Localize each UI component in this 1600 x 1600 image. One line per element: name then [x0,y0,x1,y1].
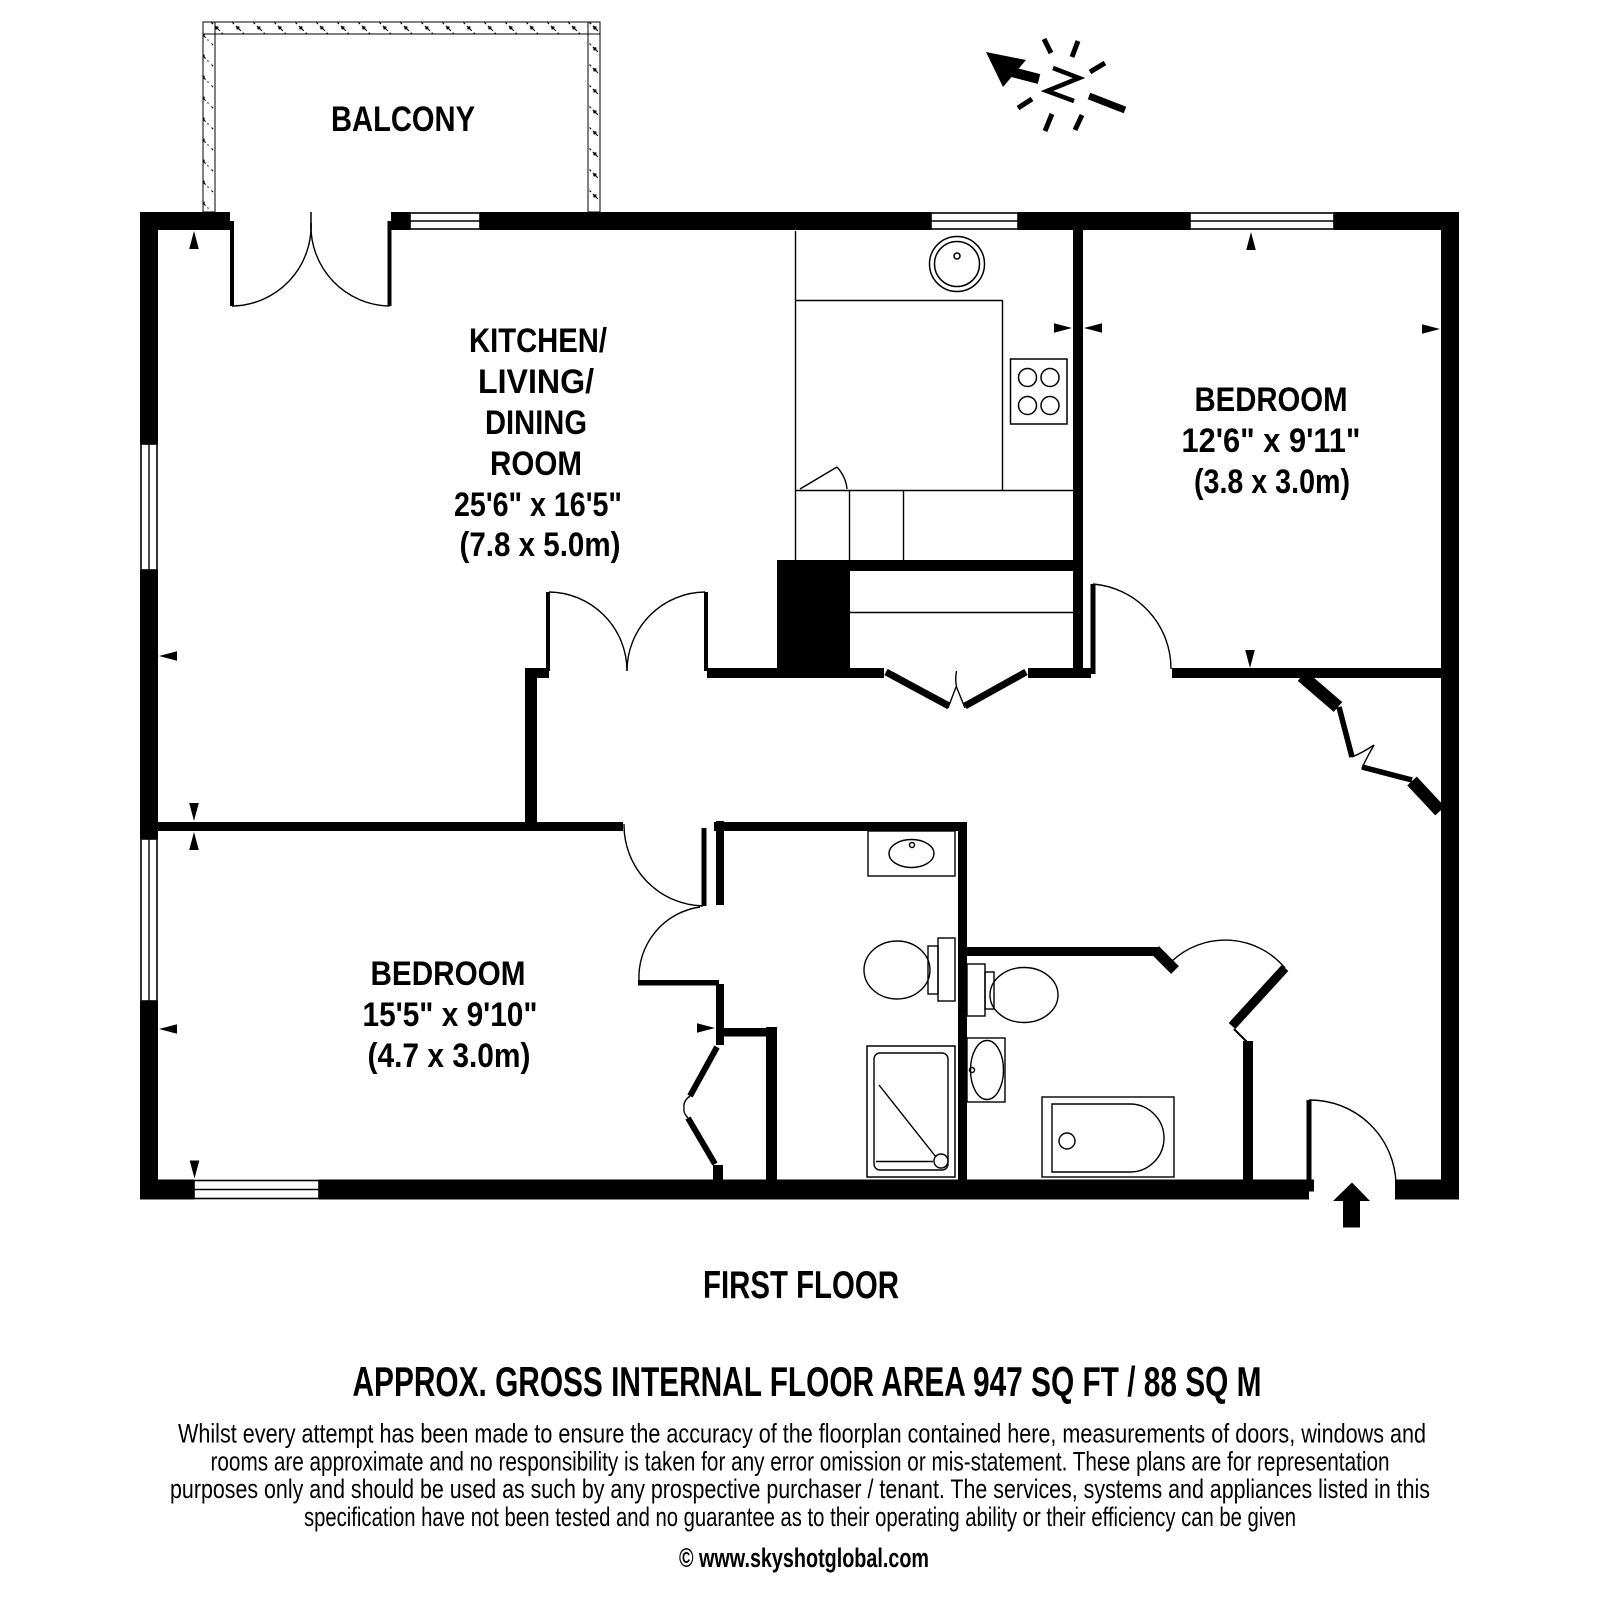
svg-text:BEDROOM: BEDROOM [371,955,526,993]
svg-text:ROOM: ROOM [490,445,582,483]
svg-text:(7.8 x 5.0m): (7.8 x 5.0m) [460,526,621,564]
svg-text:(3.8 x 3.0m): (3.8 x 3.0m) [1194,463,1350,501]
svg-text:25'6" x 16'5": 25'6" x 16'5" [454,486,622,524]
svg-text:purposes only and should be u: purposes only and should be used as such… [170,1474,1430,1504]
svg-text:15'5" x 9'10": 15'5" x 9'10" [363,996,538,1034]
svg-text:(4.7 x 3.0m): (4.7 x 3.0m) [368,1037,531,1075]
svg-text:KITCHEN/: KITCHEN/ [469,322,607,360]
svg-text:FIRST FLOOR: FIRST FLOOR [703,1264,899,1307]
svg-text:specification have not been te: specification have not been tested and n… [304,1502,1296,1532]
svg-text:© www.skyshotglobal.com: © www.skyshotglobal.com [679,1543,929,1573]
svg-text:Whilst every attempt has been: Whilst every attempt has been made to en… [178,1419,1426,1449]
svg-text:LIVING/: LIVING/ [478,363,595,401]
svg-text:12'6" x 9'11": 12'6" x 9'11" [1182,422,1361,460]
svg-text:BALCONY: BALCONY [331,100,475,139]
svg-text:APPROX. GROSS INTERNAL FLOOR A: APPROX. GROSS INTERNAL FLOOR AREA 947 SQ… [353,1358,1262,1405]
svg-text:BEDROOM: BEDROOM [1195,381,1348,419]
svg-text:rooms are approximate and no r: rooms are approximate and no responsibil… [211,1446,1390,1476]
svg-text:DINING: DINING [485,404,587,442]
